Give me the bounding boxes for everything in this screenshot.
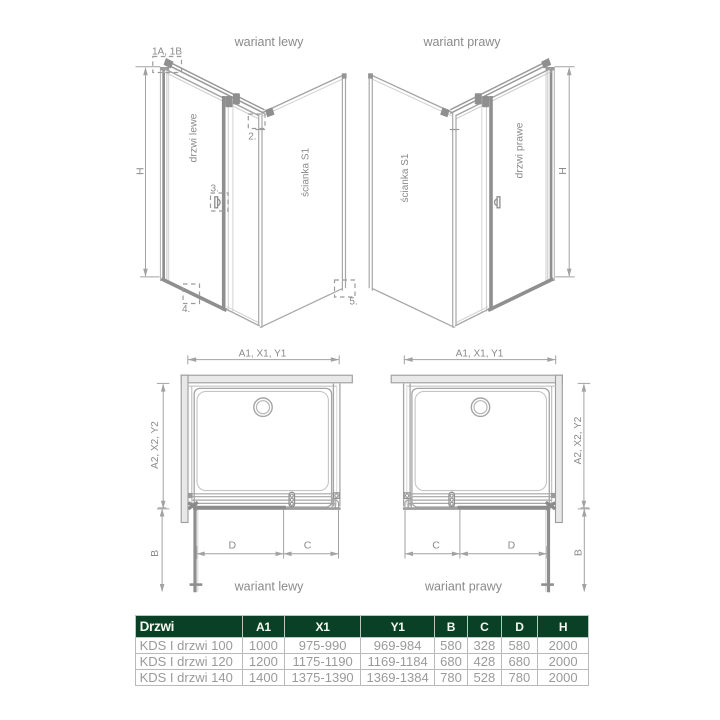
svg-text:1A, 1B: 1A, 1B <box>152 47 182 58</box>
svg-text:ścianka S1: ścianka S1 <box>400 153 411 202</box>
svg-text:2.: 2. <box>248 132 256 143</box>
svg-text:drzwi prawe: drzwi prawe <box>513 122 525 178</box>
svg-text:ścianka S1: ścianka S1 <box>301 148 312 197</box>
svg-text:A2, X2, Y2: A2, X2, Y2 <box>573 416 584 464</box>
svg-text:wariant prawy: wariant prawy <box>424 580 503 594</box>
svg-text:5.: 5. <box>349 297 357 308</box>
svg-text:H: H <box>557 167 569 175</box>
svg-text:wariant prawy: wariant prawy <box>422 35 501 49</box>
svg-text:B: B <box>573 549 585 556</box>
svg-text:H: H <box>134 167 146 175</box>
svg-text:3.: 3. <box>211 184 219 195</box>
svg-text:4.: 4. <box>182 304 190 315</box>
svg-text:drzwi lewe: drzwi lewe <box>188 113 200 162</box>
svg-text:D: D <box>229 540 237 552</box>
svg-text:C: C <box>432 540 440 552</box>
svg-text:B: B <box>149 550 161 557</box>
svg-text:A2, X2, Y2: A2, X2, Y2 <box>150 421 161 469</box>
svg-text:wariant lewy: wariant lewy <box>234 35 305 49</box>
svg-text:A1, X1, Y1: A1, X1, Y1 <box>239 349 287 360</box>
svg-text:A1, X1, Y1: A1, X1, Y1 <box>456 349 504 360</box>
svg-text:wariant lewy: wariant lewy <box>234 580 305 594</box>
svg-text:C: C <box>304 540 312 552</box>
svg-text:D: D <box>508 540 516 552</box>
